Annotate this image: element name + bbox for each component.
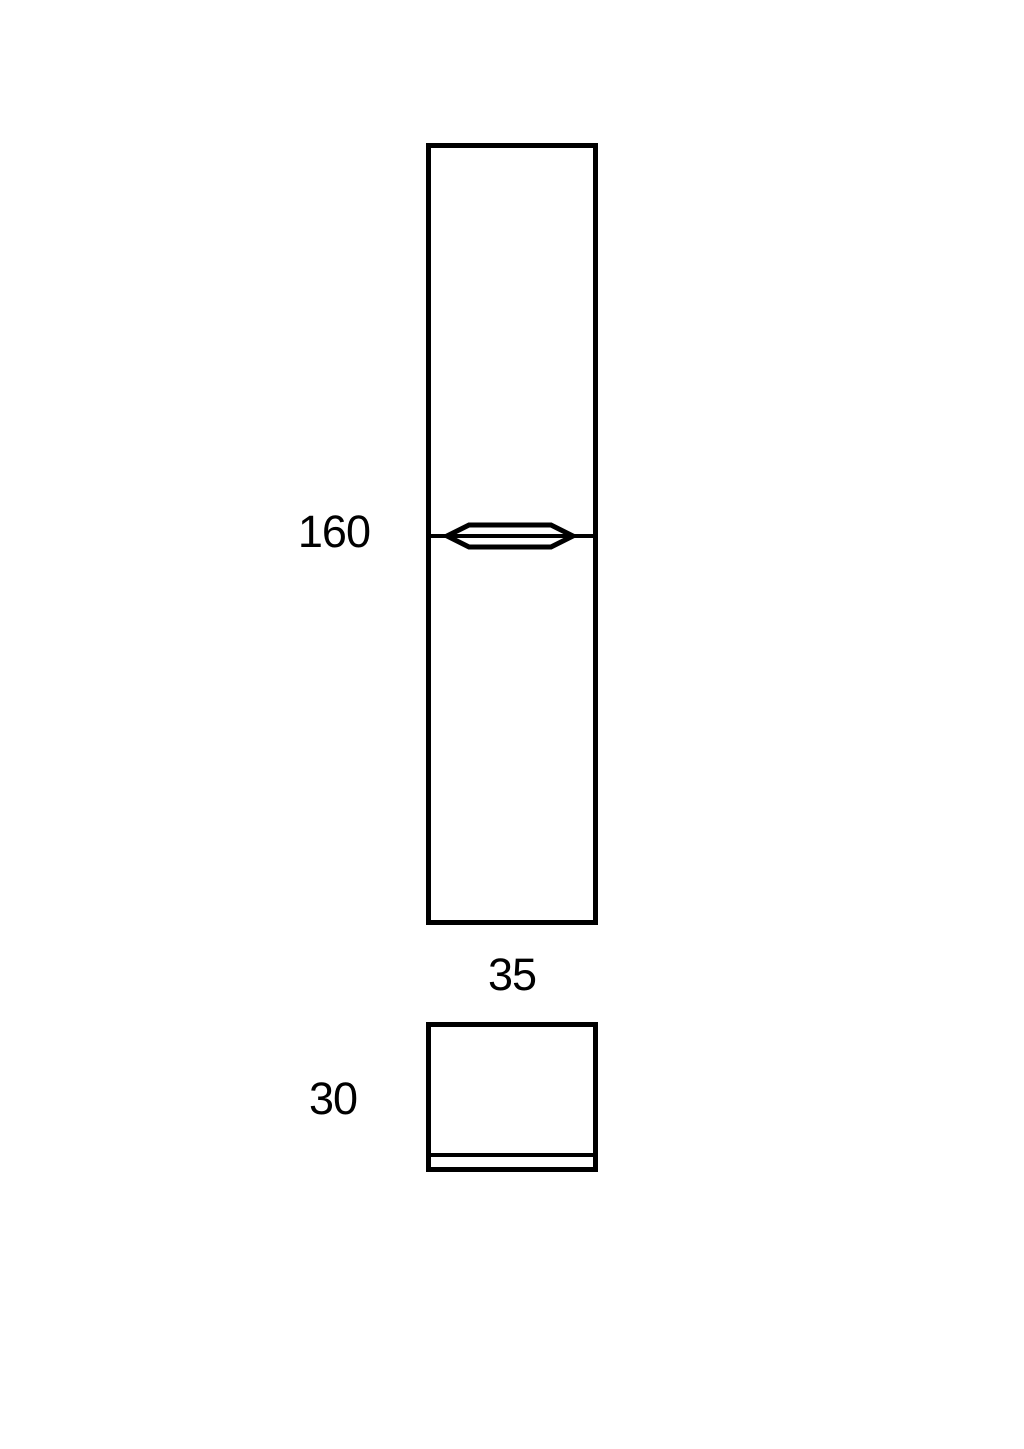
drawing-canvas: 160 35 30 [0,0,1024,1449]
side-view-outline [426,1022,598,1172]
width-dimension-label: 35 [426,952,598,997]
height-dimension-label: 160 [280,509,370,554]
door-handle-icon [443,520,577,552]
depth-dimension-label: 30 [288,1076,378,1121]
plinth-line [431,1153,593,1157]
